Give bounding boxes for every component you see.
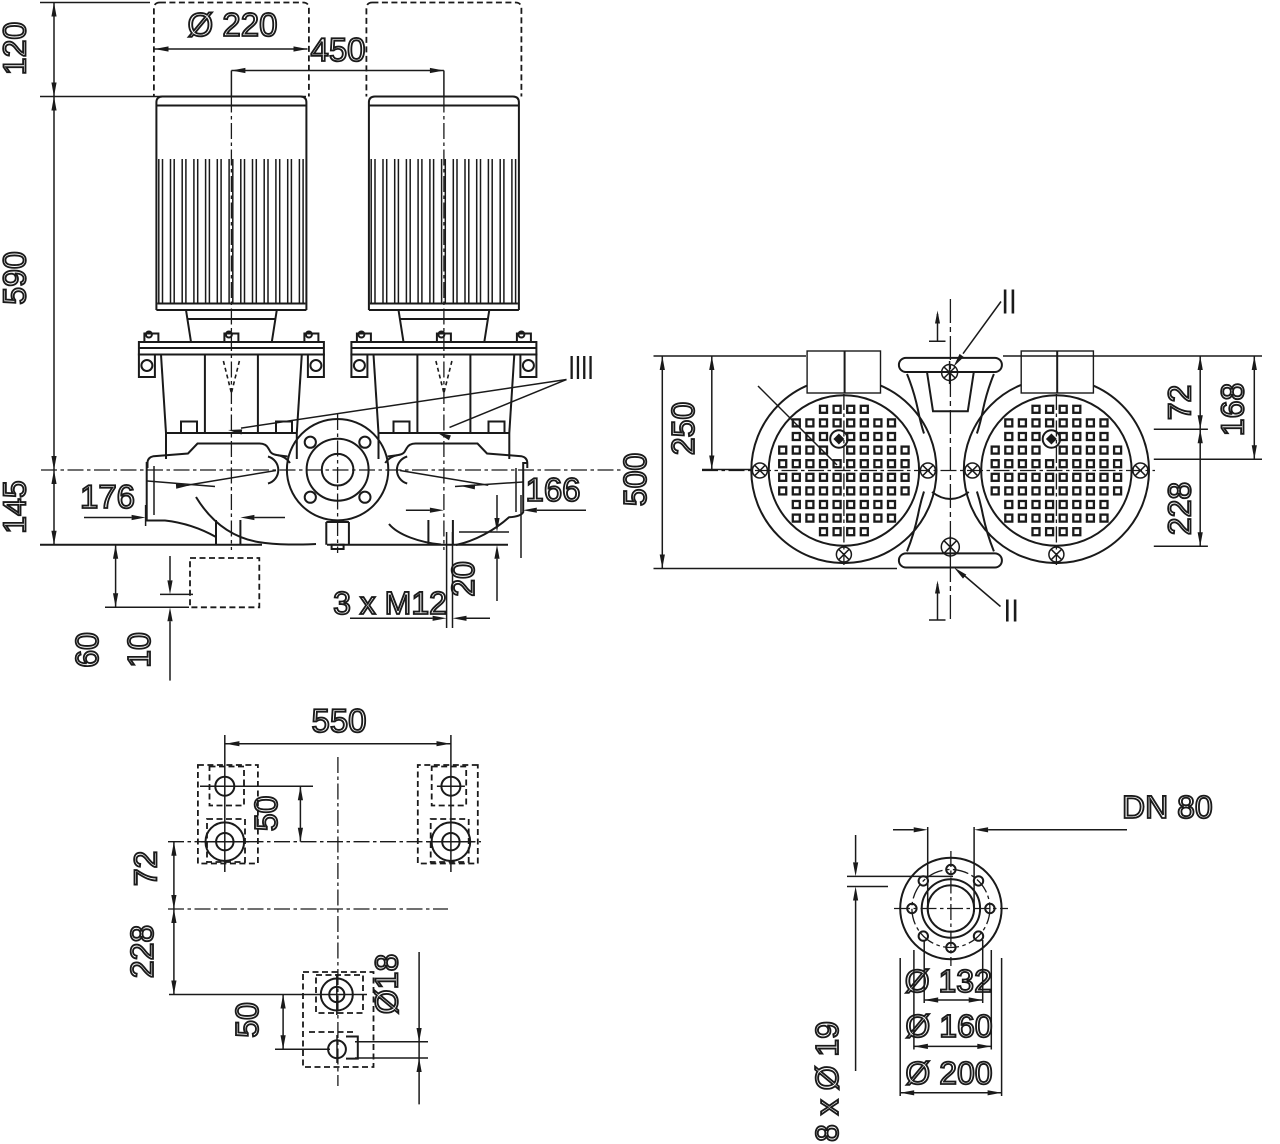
svg-text:10: 10 [121,632,157,668]
svg-text:168: 168 [1215,383,1251,436]
svg-text:Ø 220: Ø 220 [188,6,278,43]
svg-text:228: 228 [124,925,160,978]
svg-text:590: 590 [0,251,33,304]
svg-text:250: 250 [665,402,701,455]
svg-text:550: 550 [311,702,366,739]
svg-text:166: 166 [525,471,580,508]
svg-text:500: 500 [617,453,653,506]
svg-text:20: 20 [445,561,481,597]
svg-text:Ø 200: Ø 200 [905,1055,992,1091]
svg-text:72: 72 [128,851,164,887]
svg-text:Ø18: Ø18 [369,954,405,1014]
svg-text:DN 80: DN 80 [1122,789,1213,825]
svg-text:120: 120 [0,22,33,75]
svg-text:Ø 132: Ø 132 [905,963,992,999]
svg-text:176: 176 [80,478,135,515]
svg-text:3 x M12: 3 x M12 [333,585,447,621]
svg-text:50: 50 [229,1002,265,1038]
svg-text:450: 450 [310,31,365,68]
svg-text:228: 228 [1162,482,1198,535]
svg-text:145: 145 [0,480,33,533]
svg-text:72: 72 [1162,385,1198,421]
svg-text:60: 60 [69,632,105,668]
svg-text:50: 50 [248,796,284,832]
svg-text:8 x Ø 19: 8 x Ø 19 [809,1021,845,1142]
svg-text:Ø 160: Ø 160 [905,1008,992,1044]
